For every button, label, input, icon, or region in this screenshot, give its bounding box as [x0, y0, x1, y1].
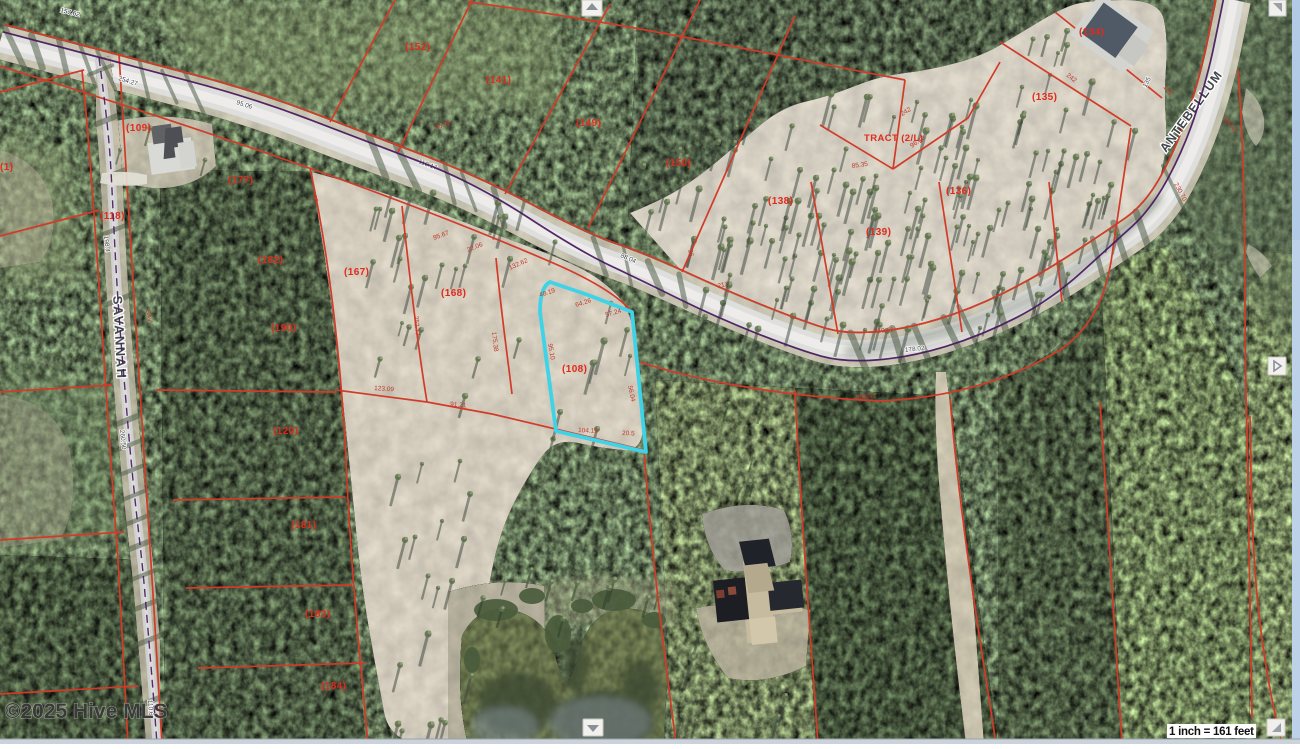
svg-text:219.61: 219.61: [874, 327, 895, 335]
svg-text:104.19: 104.19: [578, 427, 599, 435]
svg-text:(109): (109): [126, 123, 151, 134]
svg-text:123.09: 123.09: [374, 385, 395, 393]
svg-text:20.5: 20.5: [622, 430, 635, 437]
svg-text:298.91: 298.91: [856, 393, 877, 401]
svg-text:©2025 Hive MLS: ©2025 Hive MLS: [5, 700, 168, 723]
svg-text:(149): (149): [576, 118, 601, 129]
svg-text:(168): (168): [441, 288, 466, 299]
svg-text:(135): (135): [1032, 92, 1057, 103]
svg-text:(141): (141): [486, 75, 511, 86]
svg-text:(177): (177): [228, 175, 253, 186]
svg-text:(134): (134): [1079, 27, 1104, 38]
svg-text:1 inch = 161 feet: 1 inch = 161 feet: [1169, 726, 1254, 738]
svg-text:(182): (182): [258, 255, 283, 266]
svg-text:(150): (150): [666, 158, 691, 169]
svg-text:(1): (1): [0, 162, 13, 173]
svg-text:(184): (184): [321, 681, 346, 692]
svg-text:(138): (138): [768, 196, 793, 207]
svg-text:(108): (108): [562, 364, 587, 375]
svg-text:(183): (183): [305, 609, 330, 620]
svg-text:(181): (181): [291, 520, 316, 531]
svg-text:91.21: 91.21: [450, 401, 467, 409]
svg-text:(136): (136): [946, 186, 971, 197]
svg-text:(167): (167): [344, 267, 369, 278]
svg-text:(152): (152): [405, 42, 430, 53]
svg-text:(118): (118): [100, 211, 125, 222]
svg-text:(139): (139): [866, 227, 891, 238]
svg-text:(190): (190): [271, 323, 296, 334]
svg-text:(120): (120): [273, 426, 298, 437]
